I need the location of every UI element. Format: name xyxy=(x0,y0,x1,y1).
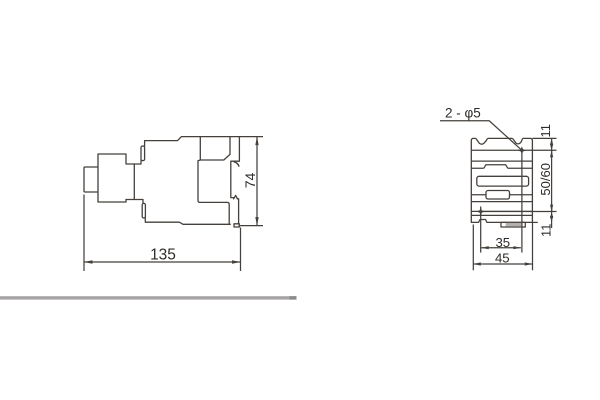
svg-text:135: 135 xyxy=(150,247,176,264)
svg-text:74: 74 xyxy=(242,173,258,189)
svg-text:2 - φ5: 2 - φ5 xyxy=(445,106,481,121)
svg-text:11: 11 xyxy=(538,124,553,138)
svg-text:35: 35 xyxy=(495,235,510,250)
svg-text:45: 45 xyxy=(495,250,510,265)
svg-text:50/60: 50/60 xyxy=(538,163,553,196)
svg-text:11: 11 xyxy=(539,224,554,238)
